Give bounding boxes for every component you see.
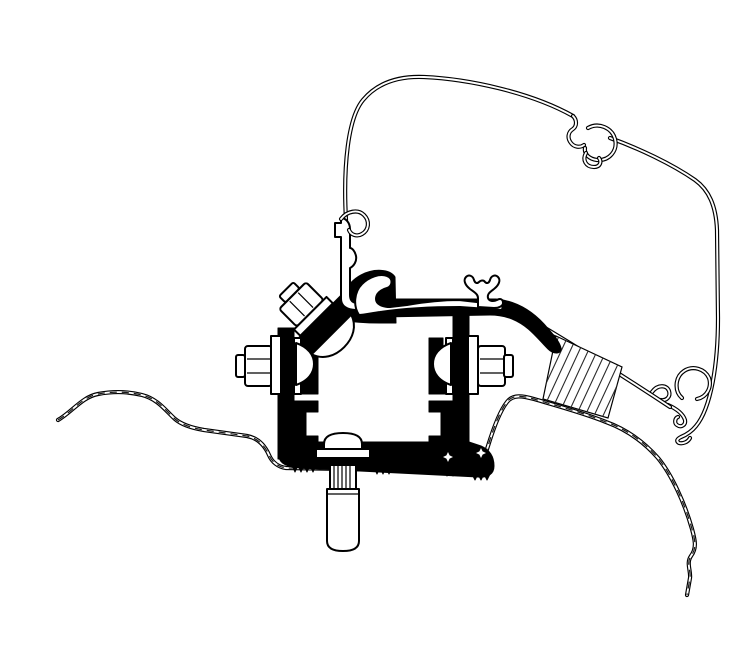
left-bolt-tip — [236, 355, 245, 377]
right-bolt-tip — [504, 355, 513, 377]
body-edge — [468, 396, 695, 595]
base-bolt-washer — [316, 449, 370, 458]
diagram-canvas — [40, 16, 732, 631]
awning-adapter-cross-section: Technical cross-section line drawing of … — [40, 16, 732, 631]
inner-channel-left-lower — [293, 401, 318, 447]
left-bolt-hex-head — [245, 346, 272, 386]
cover-clip — [569, 116, 616, 167]
base-bolt-dome-head — [324, 433, 362, 449]
left-bolt-washer — [271, 336, 281, 394]
inner-channel-right-lower — [429, 401, 454, 447]
base-bolt — [316, 433, 370, 551]
bracket-right-wall — [453, 332, 469, 459]
base-bolt-sleeve — [327, 489, 359, 551]
right-bolt-hex-head — [478, 346, 505, 386]
right-bolt — [433, 336, 513, 394]
right-bolt-washer — [468, 336, 478, 394]
